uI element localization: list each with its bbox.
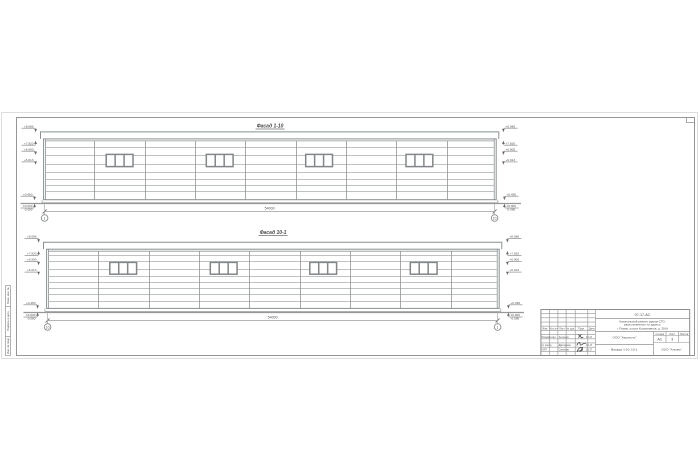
- svg-text:+6.900: +6.900: [506, 147, 516, 151]
- svg-text:-0.080: -0.080: [507, 208, 516, 212]
- svg-text:Антонов: Антонов: [559, 335, 570, 339]
- svg-text:Дмитриев: Дмитриев: [559, 343, 572, 347]
- svg-text:54000: 54000: [268, 316, 278, 320]
- svg-text:54000: 54000: [265, 207, 275, 211]
- svg-text:1: 1: [44, 216, 46, 220]
- svg-text:Подп.: Подп.: [578, 326, 585, 330]
- svg-text:Разработал: Разработал: [542, 335, 557, 339]
- svg-text:+7.820: +7.820: [27, 252, 37, 256]
- svg-text:10: 10: [46, 325, 50, 329]
- svg-text:+8.086: +8.086: [27, 235, 37, 239]
- svg-text:+6.013: +6.013: [24, 158, 34, 162]
- svg-text:Кол.уч: Кол.уч: [550, 326, 558, 330]
- svg-text:Подпись и дата: Подпись и дата: [6, 311, 10, 331]
- svg-text:+6.900: +6.900: [27, 258, 37, 262]
- svg-text:ГИП: ГИП: [542, 347, 547, 351]
- svg-text:Листов: Листов: [680, 332, 689, 336]
- svg-text:10.17: 10.17: [586, 343, 593, 347]
- svg-text:+0.450: +0.450: [511, 301, 521, 305]
- svg-text:+0.450: +0.450: [26, 301, 36, 305]
- svg-text:1: 1: [497, 325, 499, 329]
- svg-text:+7.820: +7.820: [510, 252, 520, 256]
- svg-text:Стадия: Стадия: [655, 332, 664, 336]
- svg-text:Н. контр.: Н. контр.: [542, 343, 553, 347]
- svg-text:+7.820: +7.820: [24, 141, 34, 145]
- svg-text:-0.080: -0.080: [27, 317, 36, 321]
- svg-text:ООО "Акрополь": ООО "Акрополь": [613, 336, 637, 340]
- svg-text:ООО "Альянс": ООО "Альянс": [661, 348, 682, 352]
- svg-text:07-17-АС: 07-17-АС: [635, 313, 651, 317]
- svg-text:Сазонов: Сазонов: [559, 347, 570, 351]
- svg-text:-0.080: -0.080: [24, 208, 33, 212]
- svg-text:3: 3: [671, 338, 673, 342]
- svg-text:Дата: Дата: [589, 326, 595, 330]
- svg-text:10: 10: [493, 216, 497, 220]
- svg-text:Лист: Лист: [669, 332, 675, 336]
- svg-text:г. Пермь, шоссе Космонавтов, д: г. Пермь, шоссе Космонавтов, д. 316А: [617, 326, 668, 330]
- svg-text:+8.086: +8.086: [506, 124, 516, 128]
- svg-text:-0.080: -0.080: [511, 317, 520, 321]
- svg-text:АС: АС: [657, 338, 662, 342]
- svg-text:Лист: Лист: [559, 326, 565, 330]
- svg-text:+8.086: +8.086: [510, 235, 520, 239]
- svg-text:10.17: 10.17: [586, 335, 593, 339]
- svg-text:+8.086: +8.086: [24, 124, 34, 128]
- svg-text:Взам. инв. №: Взам. инв. №: [6, 287, 10, 304]
- svg-text:+6.900: +6.900: [510, 258, 520, 262]
- svg-text:Инв. № подл.: Инв. № подл.: [6, 337, 10, 354]
- svg-text:+0.450: +0.450: [23, 192, 33, 196]
- svg-text:+0.450: +0.450: [507, 192, 517, 196]
- svg-text:№ док.: № док.: [566, 327, 575, 330]
- svg-text:+6.013: +6.013: [27, 268, 37, 272]
- svg-text:Фасады 1-10, 10-1.: Фасады 1-10, 10-1.: [611, 348, 638, 352]
- svg-text:+6.900: +6.900: [24, 147, 34, 151]
- svg-text:10.17: 10.17: [586, 347, 593, 351]
- svg-text:+7.820: +7.820: [506, 141, 516, 145]
- svg-text:+6.013: +6.013: [510, 268, 520, 272]
- svg-text:+6.013: +6.013: [506, 158, 516, 162]
- svg-text:Изм.: Изм.: [542, 326, 548, 330]
